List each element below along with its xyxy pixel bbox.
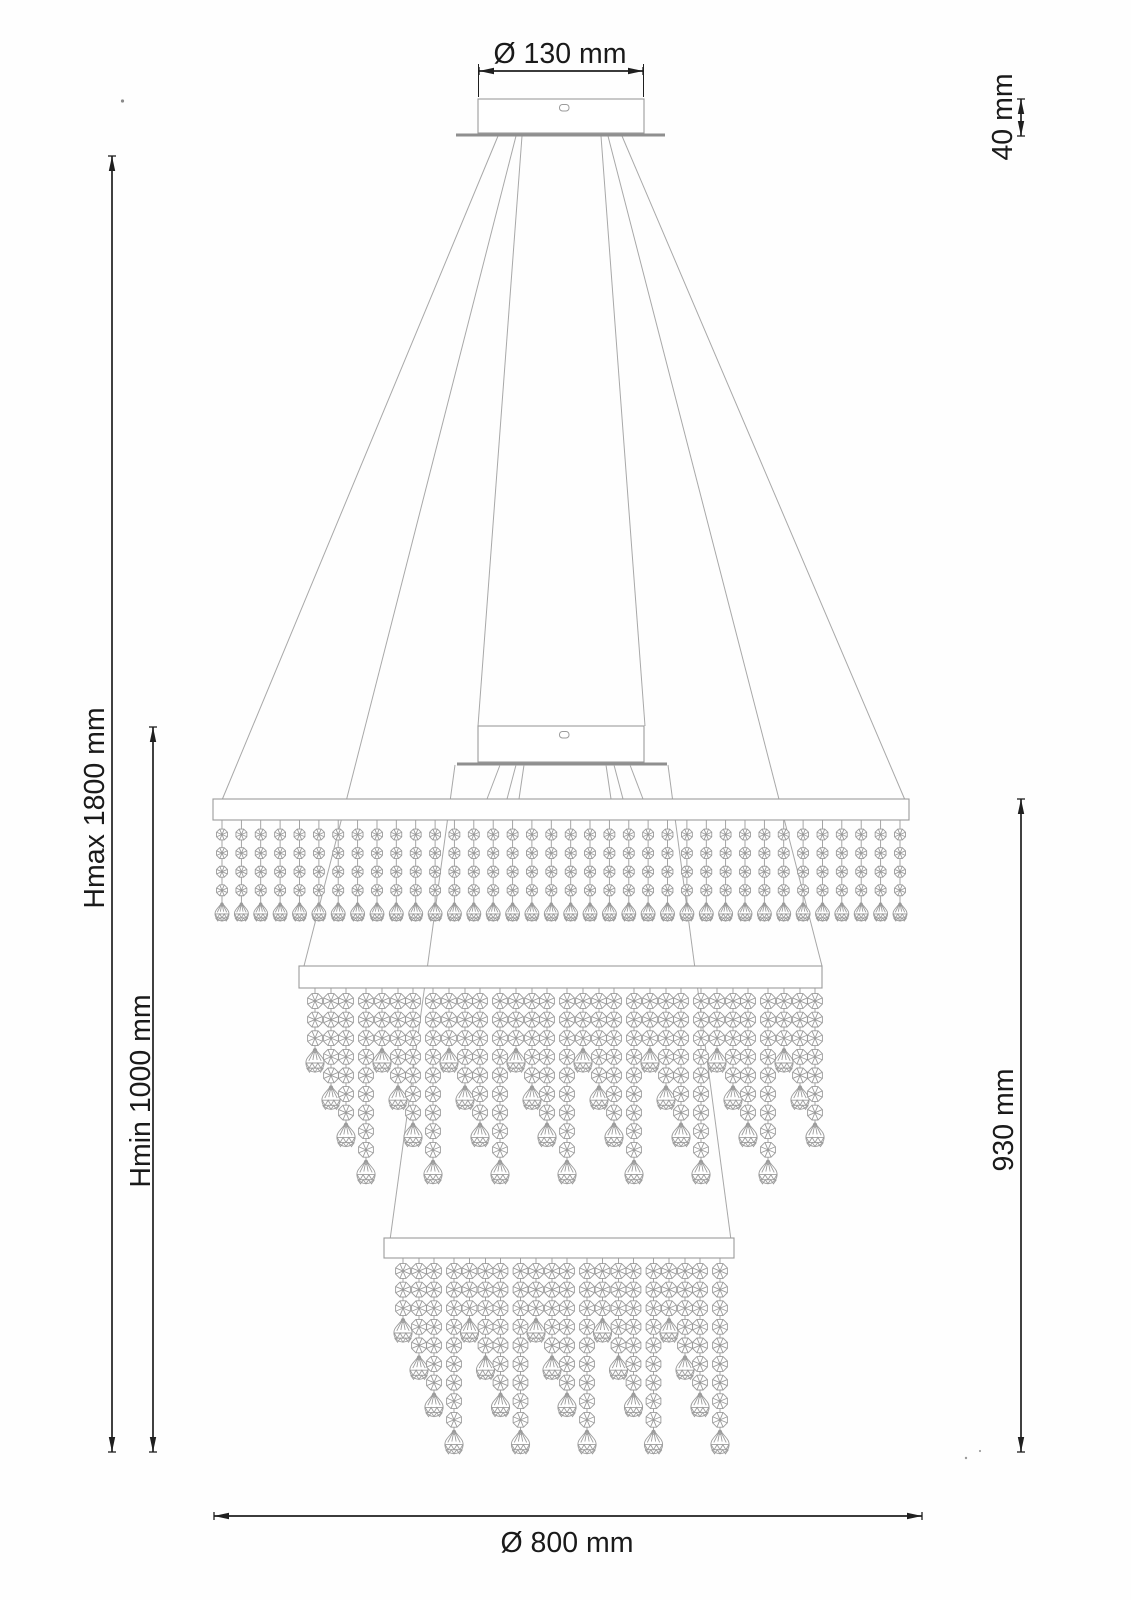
- svg-text:Ø 800 mm: Ø 800 mm: [500, 1527, 633, 1559]
- svg-text:40 mm: 40 mm: [987, 73, 1019, 160]
- svg-text:Hmax 1800 mm: Hmax 1800 mm: [79, 707, 111, 908]
- svg-text:Ø 130 mm: Ø 130 mm: [493, 38, 626, 70]
- svg-text:930 mm: 930 mm: [988, 1069, 1020, 1172]
